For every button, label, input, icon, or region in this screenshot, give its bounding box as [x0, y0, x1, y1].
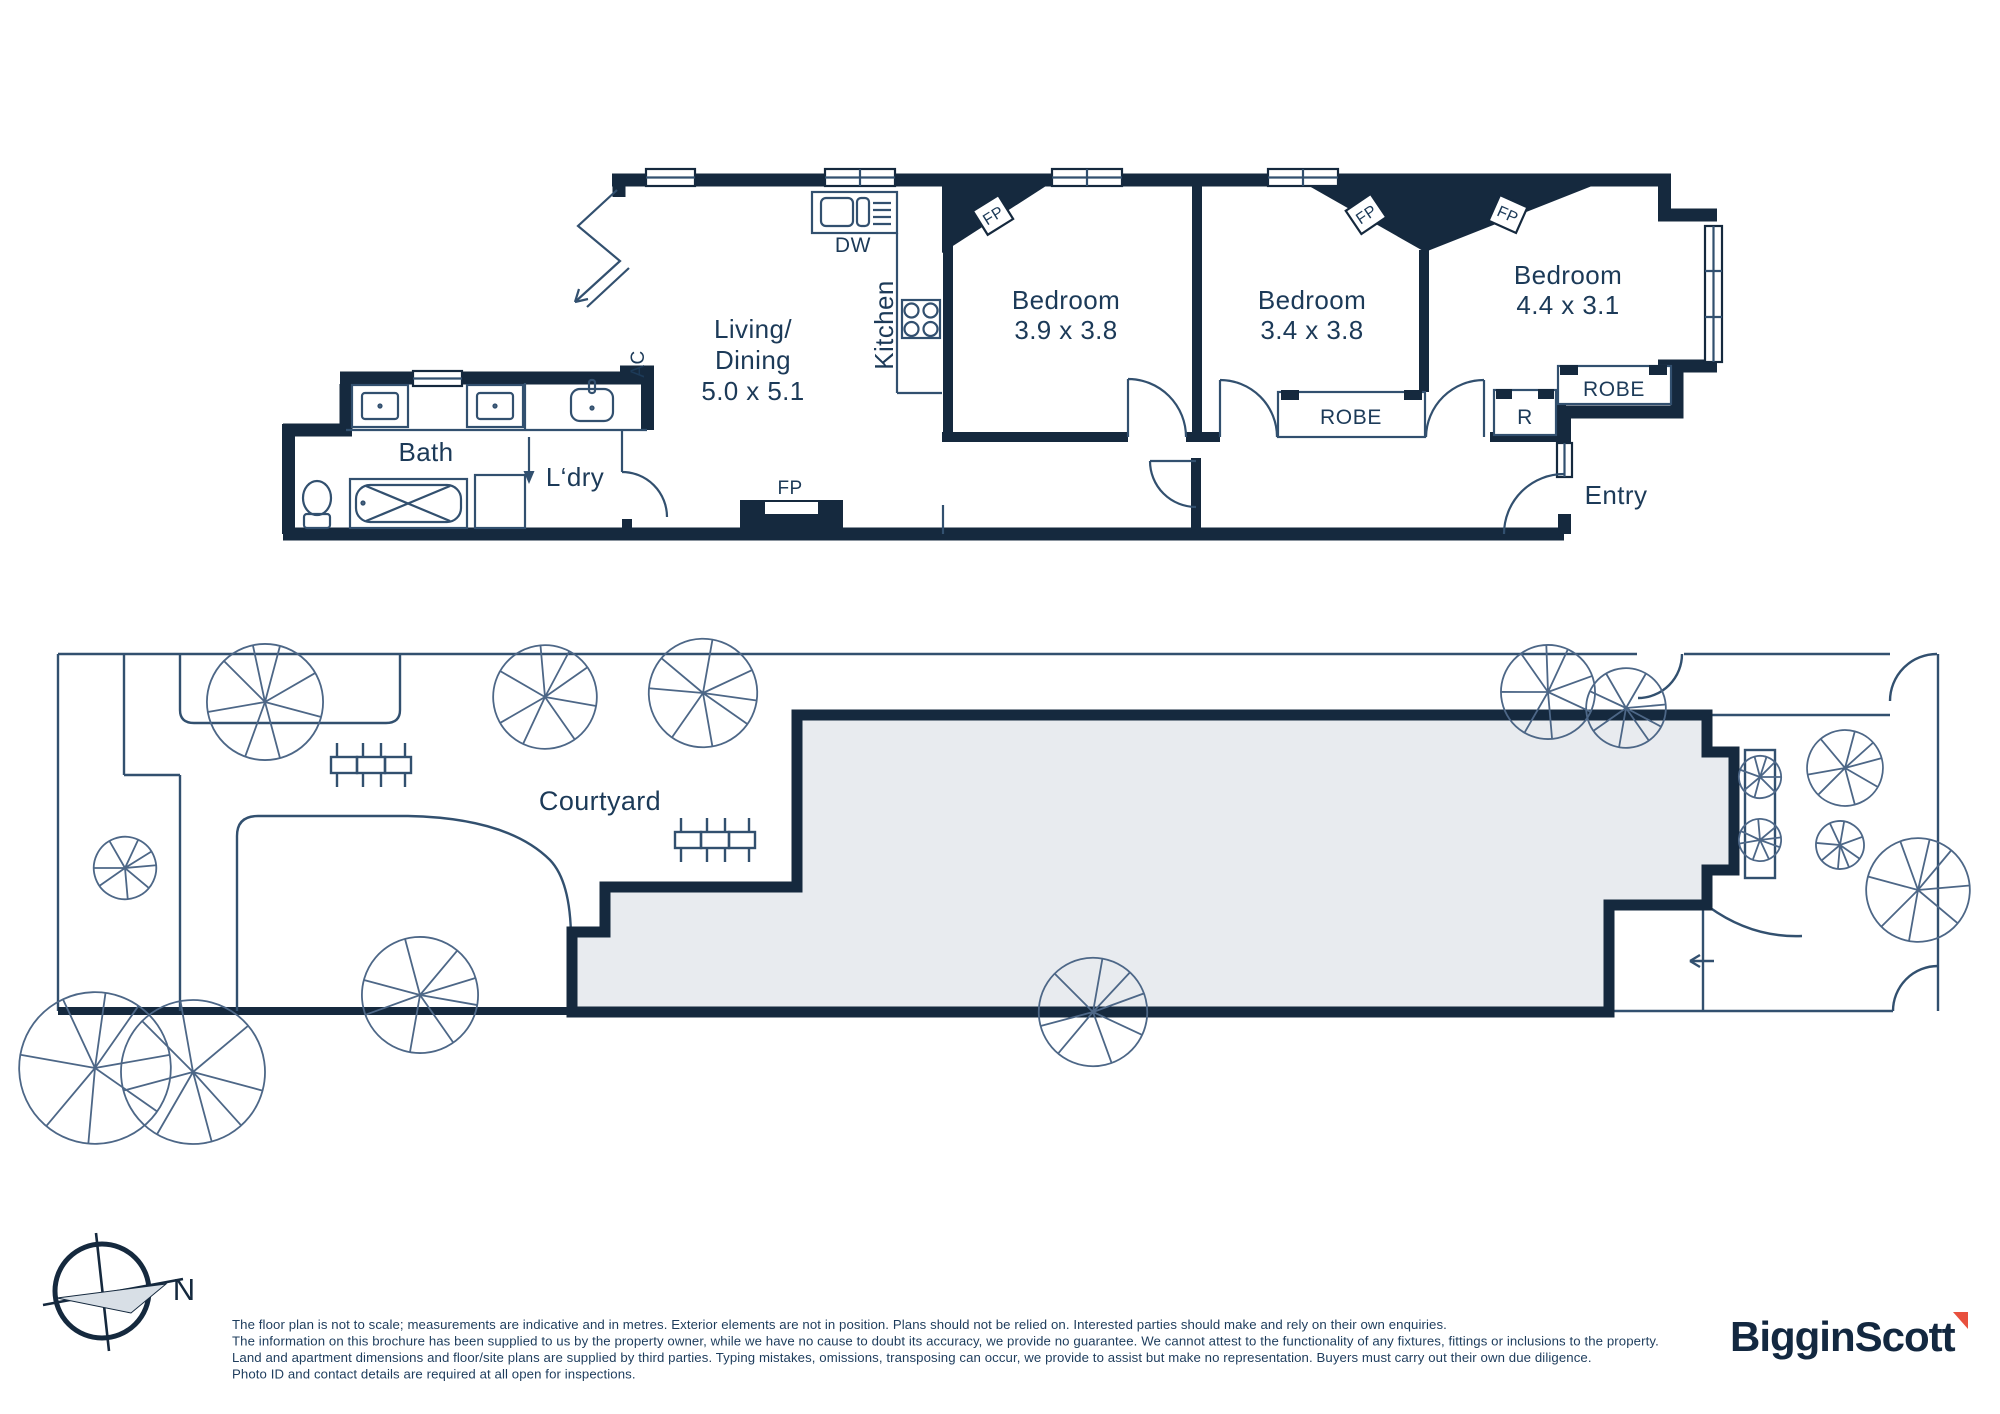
tree-icon — [1812, 817, 1868, 873]
label-ac: AC — [628, 350, 649, 377]
bathtub — [350, 479, 467, 528]
window-bedroom1 — [1052, 169, 1122, 186]
gate-top-2 — [1890, 654, 1937, 701]
door-bedroom3 — [1426, 380, 1484, 437]
window-kitchen — [825, 169, 895, 186]
label-bedroom2: Bedroom — [1258, 285, 1366, 315]
entry-zigzag-arrow — [575, 190, 629, 307]
label-dishwasher: DW — [835, 234, 871, 257]
disclaimer-line-2: The information on this brochure has bee… — [232, 1334, 1659, 1349]
label-laundry: L‘dry — [546, 462, 604, 492]
tree-icon — [85, 828, 165, 908]
courtyard-site-plan: Courtyard — [0, 623, 1987, 1170]
tree-icon — [633, 623, 772, 762]
tree-icon — [207, 644, 323, 760]
fireplace-hearth — [765, 502, 818, 514]
window-bath — [413, 371, 462, 386]
floorplan-page: FP FP FP — [0, 0, 2000, 1414]
brand-logo-text: BigginScott — [1730, 1313, 1956, 1360]
disclaimer-line-3: Land and apartment dimensions and floor/… — [232, 1350, 1592, 1365]
tree-icon — [1731, 748, 1789, 806]
label-robe-small: R — [1517, 406, 1533, 429]
label-fp-living: FP — [777, 478, 802, 499]
brand-logo-accent-triangle — [1953, 1312, 1968, 1329]
label-bedroom3-dims: 4.4 x 3.1 — [1516, 290, 1619, 320]
toilet — [303, 481, 331, 515]
window-bedroom2 — [1268, 169, 1338, 186]
floorplan-canvas: FP FP FP — [0, 0, 2000, 1414]
window-entry — [1557, 443, 1572, 477]
label-bedroom3: Bedroom — [1514, 260, 1622, 290]
compass-north-label: N — [173, 1272, 195, 1307]
window-living — [646, 169, 695, 186]
cooktop — [902, 300, 940, 338]
disclaimer: The floor plan is not to scale; measurem… — [232, 1317, 1659, 1382]
vanity-2 — [467, 385, 523, 427]
tree-icon — [95, 974, 292, 1171]
apartment-floor-plan: FP FP FP — [283, 169, 1722, 534]
disclaimer-line-1: The floor plan is not to scale; measurem… — [232, 1317, 1447, 1332]
shower — [475, 475, 525, 528]
label-bath: Bath — [398, 437, 453, 467]
label-living-dims: 5.0 x 5.1 — [701, 376, 804, 406]
tree-icon — [472, 624, 618, 770]
label-living-2: Dining — [715, 345, 791, 375]
disclaimer-line-4: Photo ID and contact details are require… — [232, 1367, 636, 1382]
vanity-1 — [352, 385, 408, 427]
label-kitchen: Kitchen — [869, 280, 899, 370]
hedge-icon — [675, 818, 755, 862]
door-bedroom2 — [1220, 380, 1277, 437]
tree-icon — [0, 971, 192, 1165]
gate-bottom-right — [1893, 966, 1938, 1011]
label-bedroom1-dims: 3.9 x 3.8 — [1014, 315, 1117, 345]
tree-icon — [357, 932, 483, 1058]
door-entry — [1504, 474, 1564, 534]
building-footprint — [572, 715, 1734, 1012]
label-bedroom1: Bedroom — [1012, 285, 1120, 315]
compass-icon: N — [43, 1233, 195, 1351]
label-bedroom2-dims: 3.4 x 3.8 — [1260, 315, 1363, 345]
bath-laundry-fixtures — [303, 380, 647, 528]
door-hallway — [1150, 461, 1196, 507]
tree-icon — [1793, 716, 1897, 820]
hedge-icon — [331, 743, 411, 787]
tree-icon — [1849, 821, 1987, 959]
label-entry: Entry — [1585, 480, 1648, 510]
label-courtyard: Courtyard — [539, 786, 661, 816]
brand-logo: BigginScott — [1730, 1312, 1968, 1360]
door-bedroom1 — [1128, 379, 1186, 437]
label-robe2: ROBE — [1583, 378, 1645, 401]
label-robe1: ROBE — [1320, 406, 1382, 429]
label-living-1: Living/ — [714, 314, 792, 344]
window-bay-bedroom3 — [1705, 226, 1722, 362]
door-laundry — [622, 472, 667, 517]
